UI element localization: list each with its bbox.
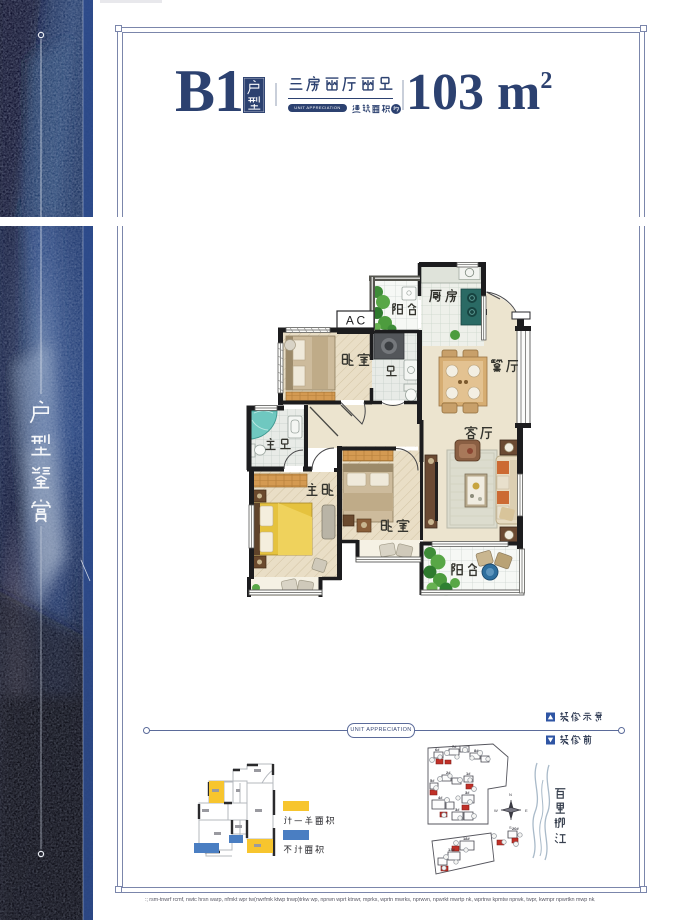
svg-text:E: E	[525, 808, 528, 813]
svg-text:1#: 1#	[466, 771, 471, 776]
svg-text:5#: 5#	[430, 778, 435, 783]
svg-text:3#: 3#	[465, 790, 470, 795]
svg-text:N: N	[509, 792, 512, 797]
svg-text:4#: 4#	[438, 795, 443, 800]
svg-text:7#: 7#	[452, 744, 457, 749]
svg-text:W: W	[494, 808, 498, 813]
svg-text:A C: A C	[346, 314, 366, 328]
svg-text:8#: 8#	[474, 748, 479, 753]
svg-text:6#: 6#	[435, 747, 440, 752]
svg-text:20#: 20#	[512, 826, 519, 831]
svg-text:3#: 3#	[455, 807, 460, 812]
svg-text:2#: 2#	[446, 770, 451, 775]
svg-text:18#: 18#	[463, 836, 470, 841]
svg-text:13#: 13#	[448, 847, 455, 852]
svg-text:S: S	[509, 825, 512, 830]
